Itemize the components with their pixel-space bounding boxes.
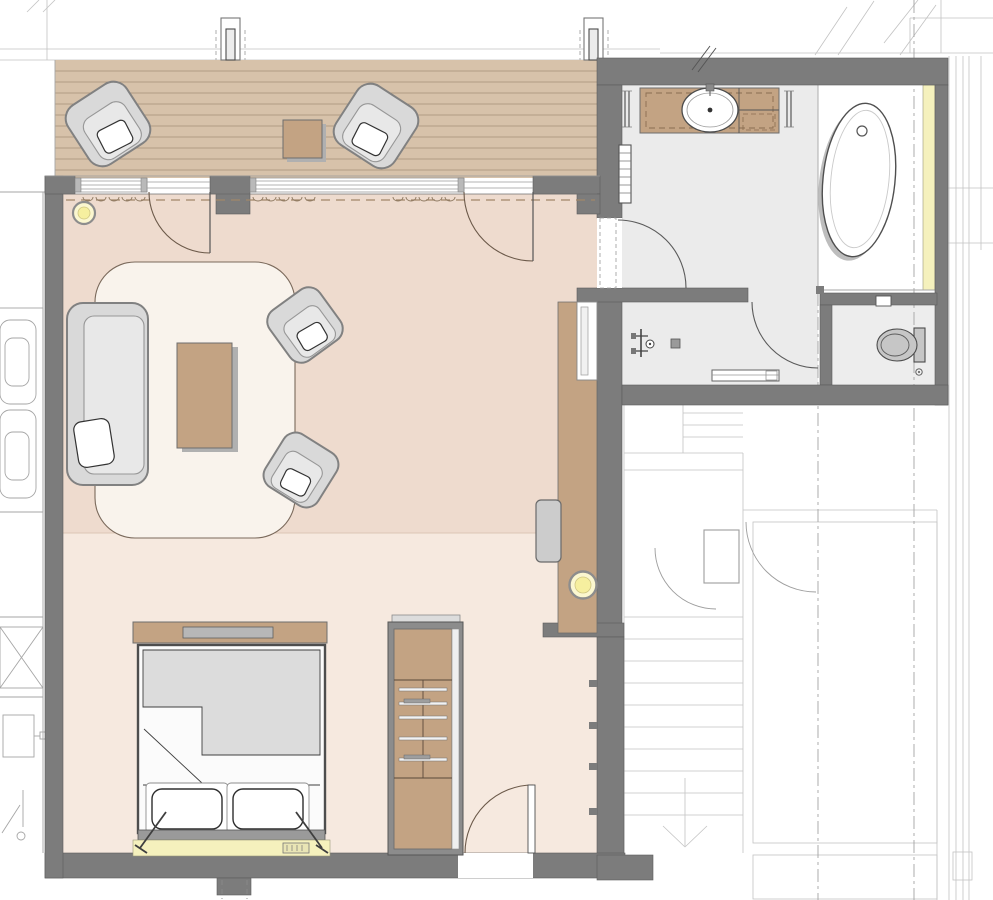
side-table	[283, 120, 326, 162]
entry-door-opening	[458, 853, 533, 878]
left-exterior-wall	[45, 176, 63, 878]
shelf-handle	[404, 755, 430, 759]
footboard-inset	[183, 627, 273, 638]
faucet	[706, 84, 714, 91]
wc-left-wall	[820, 305, 832, 385]
window-pier-left	[45, 176, 75, 194]
bathroom-right-wall	[935, 85, 948, 405]
floor-plan-drawing	[0, 0, 993, 900]
entry-door-leaf	[528, 785, 535, 853]
window-frame-block	[141, 178, 147, 192]
window-frame-block	[75, 178, 81, 192]
pillow	[233, 789, 303, 829]
shower-valve-a	[631, 333, 636, 339]
luggage-bench	[536, 500, 561, 562]
wardrobe-door-gap	[452, 629, 459, 849]
stair-door-leaf	[704, 530, 739, 583]
ceiling-light-core	[78, 207, 90, 219]
double-bed	[133, 622, 330, 856]
neighbor-pillow	[5, 432, 29, 480]
ceiling-light-core	[575, 577, 591, 593]
wc-drain-dot	[918, 371, 920, 373]
window-pier-right	[533, 176, 600, 194]
basin-drain	[708, 108, 713, 113]
sofa-pillow	[73, 417, 116, 468]
vanity	[640, 84, 779, 133]
bathroom-left-wall-upper	[597, 85, 622, 218]
window-pier-right-block	[577, 194, 600, 214]
coffee-table	[177, 343, 238, 452]
window-pier-middle-block	[216, 194, 250, 214]
shower-valve-b	[631, 348, 636, 354]
floor-plan-canvas	[0, 0, 993, 900]
window-pier-middle	[210, 176, 250, 194]
bathroom-door-leaf	[600, 218, 616, 288]
neighbor-pillow	[5, 338, 29, 386]
tub-light-cove	[923, 85, 935, 290]
window-frame-block	[458, 178, 464, 192]
bedroom-right-wall	[597, 637, 624, 855]
sofa	[67, 303, 148, 485]
flush-plate	[876, 296, 891, 306]
pillow	[152, 789, 222, 829]
bathroom-top-wall	[597, 58, 948, 85]
bathroom-bottom-wall	[622, 385, 948, 405]
bottom-exterior-wall	[45, 853, 625, 878]
shower-room-top-wall	[577, 288, 748, 302]
niche-corner-tick	[816, 286, 824, 294]
tub-drain	[857, 126, 867, 136]
bath-bench	[712, 370, 779, 381]
shelf-handle	[404, 699, 430, 703]
window-frame-block	[250, 178, 256, 192]
niche-panel	[581, 307, 588, 375]
floor-drain	[671, 339, 680, 348]
corridor-wall	[597, 288, 622, 637]
wardrobe	[388, 615, 463, 855]
bottom-right-wall-ext	[597, 855, 653, 880]
towel-radiator	[619, 145, 631, 203]
shower-head-dot	[649, 343, 651, 345]
headboard	[138, 830, 325, 840]
